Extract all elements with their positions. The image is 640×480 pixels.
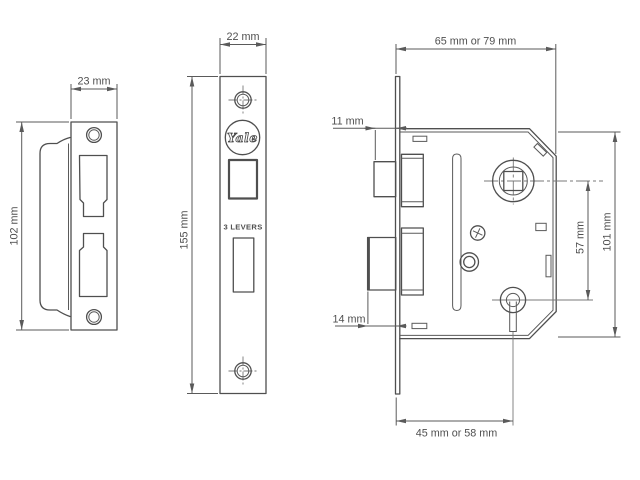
lock-body-view: 65 mm or 79 mm 11 mm 14 mm 57 mm 101 mm <box>331 36 620 440</box>
case-depth-label: 65 mm or 79 mm <box>435 36 517 48</box>
dimension-faceplate-height: 155 mm <box>179 77 219 394</box>
bolt-projection-label: 14 mm <box>333 313 366 325</box>
latch-projection-label: 11 mm <box>331 116 363 128</box>
dimension-case-height: 101 mm <box>558 132 621 337</box>
faceplate-latch-hole <box>229 160 257 199</box>
faceplate-screw-bottom <box>229 357 258 386</box>
strike-plate-width-label: 23 mm <box>78 76 111 88</box>
latch-bolt <box>374 154 423 206</box>
yale-logo: Yale <box>225 120 259 154</box>
faceplate-bolt-hole <box>233 238 254 292</box>
dimension-strike-plate-width: 23 mm <box>71 76 117 120</box>
strike-plate-height-label: 102 mm <box>9 206 21 245</box>
faceplate-height-label: 155 mm <box>179 210 191 249</box>
case-fixing-screw <box>471 226 485 240</box>
lock-dimensions-diagram: 23 mm 102 mm Yale 3 LEVERS <box>0 0 640 480</box>
lever-spring-bar <box>453 154 461 311</box>
dimension-faceplate-width: 22 mm <box>220 31 266 74</box>
faceplate-screw-top <box>229 86 258 115</box>
yale-brand-text: Yale <box>227 130 258 145</box>
strike-plate-screw-hole-bottom <box>87 310 102 325</box>
dimension-strike-plate-height: 102 mm <box>9 122 70 330</box>
strike-plate-screw-hole-top <box>87 128 102 143</box>
keyhole <box>492 287 593 425</box>
lever-pivot-post <box>460 253 478 271</box>
strike-plate-dust-box <box>40 138 70 317</box>
faceplate-view: Yale 3 LEVERS 22 mm 155 mm <box>179 31 267 394</box>
strike-plate-latch-cutout <box>80 156 108 217</box>
dimension-centres: 57 mm <box>575 181 589 300</box>
dead-bolt <box>368 228 424 295</box>
backset-label: 45 mm or 58 mm <box>416 428 498 440</box>
strike-plate-body <box>71 122 117 330</box>
levers-label: 3 LEVERS <box>223 223 262 232</box>
case-height-label: 101 mm <box>602 212 614 251</box>
centres-label: 57 mm <box>575 221 587 254</box>
strike-plate-bolt-cutout <box>80 234 108 297</box>
lock-faceplate-edge <box>396 77 400 395</box>
spindle-follower-hub <box>484 158 603 205</box>
strike-plate-view: 23 mm 102 mm <box>9 76 118 331</box>
dimension-backset: 45 mm or 58 mm <box>396 398 513 440</box>
faceplate-width-label: 22 mm <box>227 31 260 43</box>
faceplate-body <box>220 77 266 394</box>
